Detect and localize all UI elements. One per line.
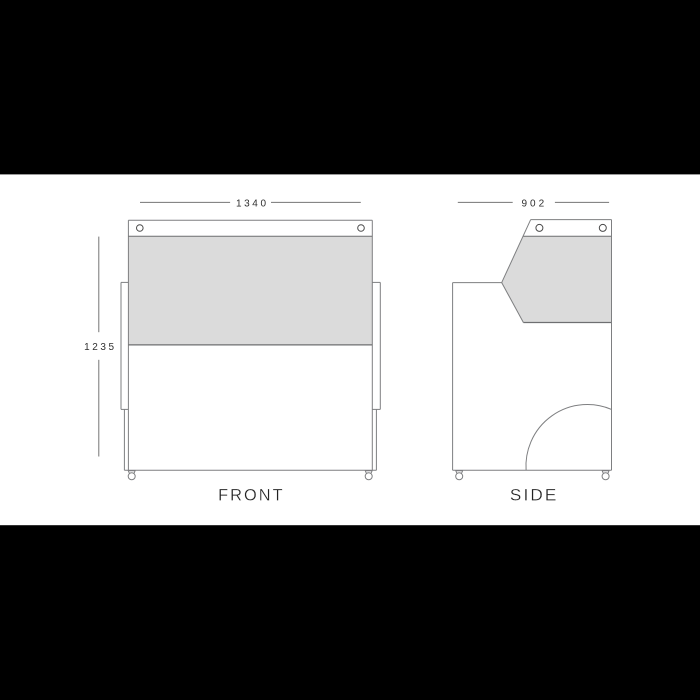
svg-text:SIDE: SIDE (510, 486, 559, 504)
svg-text:1235: 1235 (84, 342, 117, 353)
svg-text:902: 902 (521, 199, 547, 210)
svg-text:FRONT: FRONT (218, 486, 285, 504)
svg-text:1340: 1340 (236, 199, 269, 210)
